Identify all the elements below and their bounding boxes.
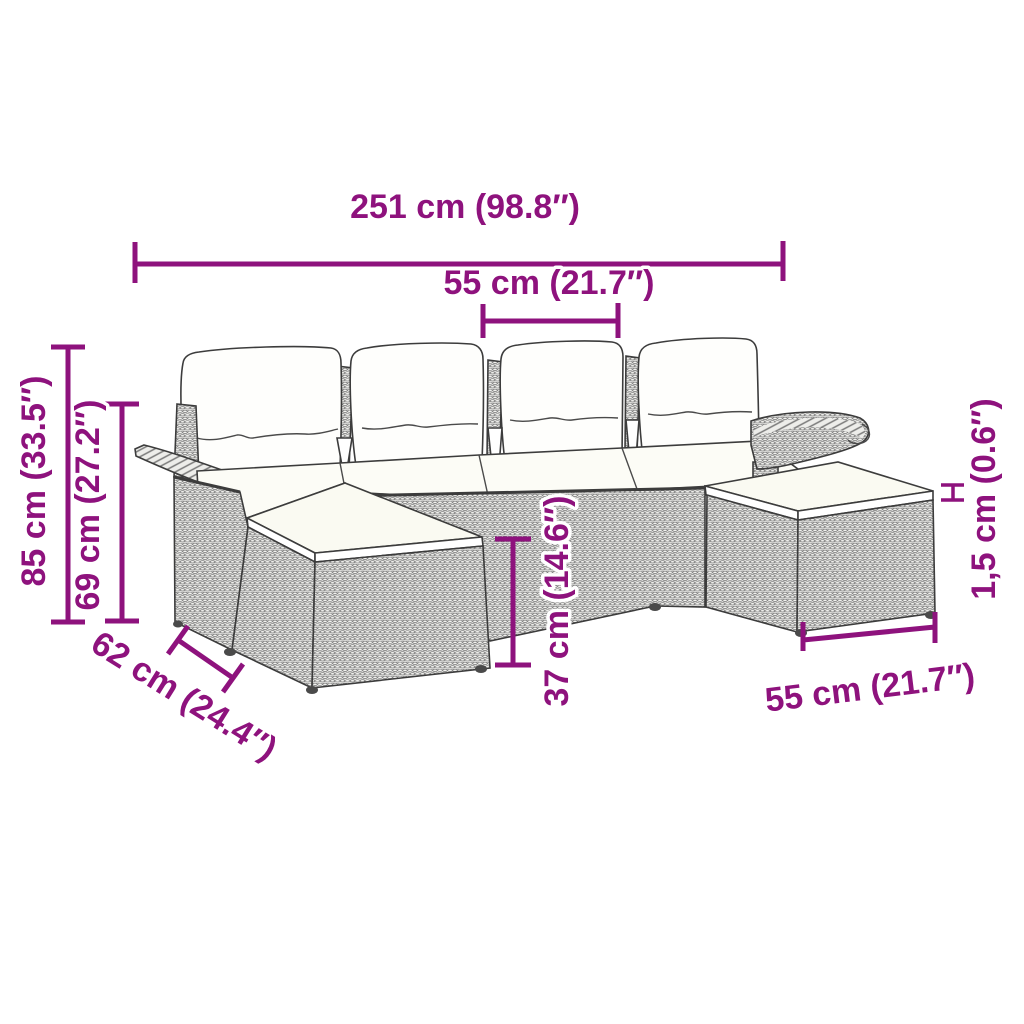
- ottoman-frame-front: [797, 500, 935, 632]
- dim-overall-height-label: 85 cm (33.5″): [15, 376, 53, 587]
- dim-backrest-height: 69 cm (27.2″): [69, 400, 139, 621]
- dim-base-height-label: 37 cm (14.6″): [538, 496, 576, 707]
- foot: [224, 648, 236, 656]
- ottoman-frame-side: [706, 495, 798, 632]
- back-cushion-3: [500, 341, 623, 462]
- dim-cushion-thickness: 1,5 cm (0.6″): [941, 398, 1003, 600]
- back-cushion-2: [350, 343, 483, 466]
- dim-seat-width-line: [483, 303, 618, 338]
- dim-seat-width-label: 55 cm (21.7″): [444, 264, 655, 302]
- dim-backrest-height-label: 69 cm (27.2″): [69, 400, 107, 611]
- foot: [475, 665, 487, 673]
- dim-cushion-thickness-line: [941, 485, 964, 500]
- back-cushion-4: [638, 338, 759, 458]
- dim-cushion-thickness-label: 1,5 cm (0.6″): [965, 398, 1003, 600]
- product-diagram-svg: 251 cm (98.8″) 55 cm (21.7″) 85 cm (33.5…: [0, 0, 1024, 1024]
- right-armrest: [751, 412, 869, 469]
- ottoman-frame-front: [312, 546, 490, 688]
- dim-seat-width: 55 cm (21.7″): [444, 264, 655, 338]
- dim-ottoman-width-label: 55 cm (21.7″): [763, 656, 977, 719]
- dimension-diagram: 251 cm (98.8″) 55 cm (21.7″) 85 cm (33.5…: [0, 0, 1024, 1024]
- foot: [306, 686, 318, 694]
- right-ottoman: [705, 462, 935, 632]
- foot: [649, 603, 661, 611]
- dim-overall-width-label: 251 cm (98.8″): [350, 188, 580, 226]
- foot: [173, 621, 183, 628]
- back-cushion-1: [181, 347, 341, 472]
- dim-backrest-height-line: [105, 404, 139, 621]
